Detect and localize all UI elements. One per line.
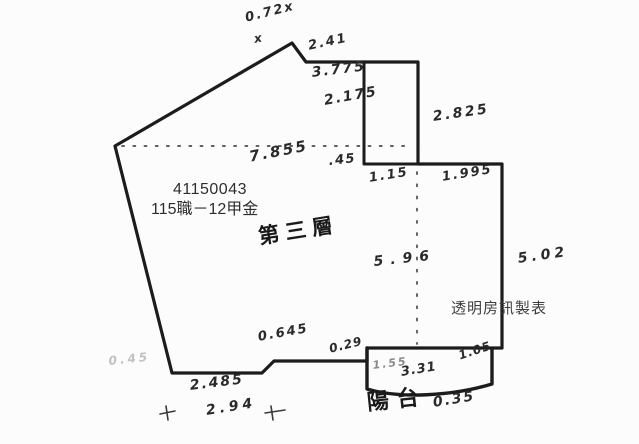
shaft-outline (364, 62, 419, 164)
parcel-name: 115職－12甲金 (151, 202, 258, 218)
dim-shaft-gap: .45 (328, 152, 357, 168)
parcel-number: 41150043 (173, 182, 247, 198)
x-mark: x (253, 32, 263, 45)
floor-plan-page: 0.72x x 2.41 3.775 2.175 2.825 .45 1.15 … (0, 0, 639, 444)
publisher-watermark: 透明房訊製表 (451, 301, 547, 316)
